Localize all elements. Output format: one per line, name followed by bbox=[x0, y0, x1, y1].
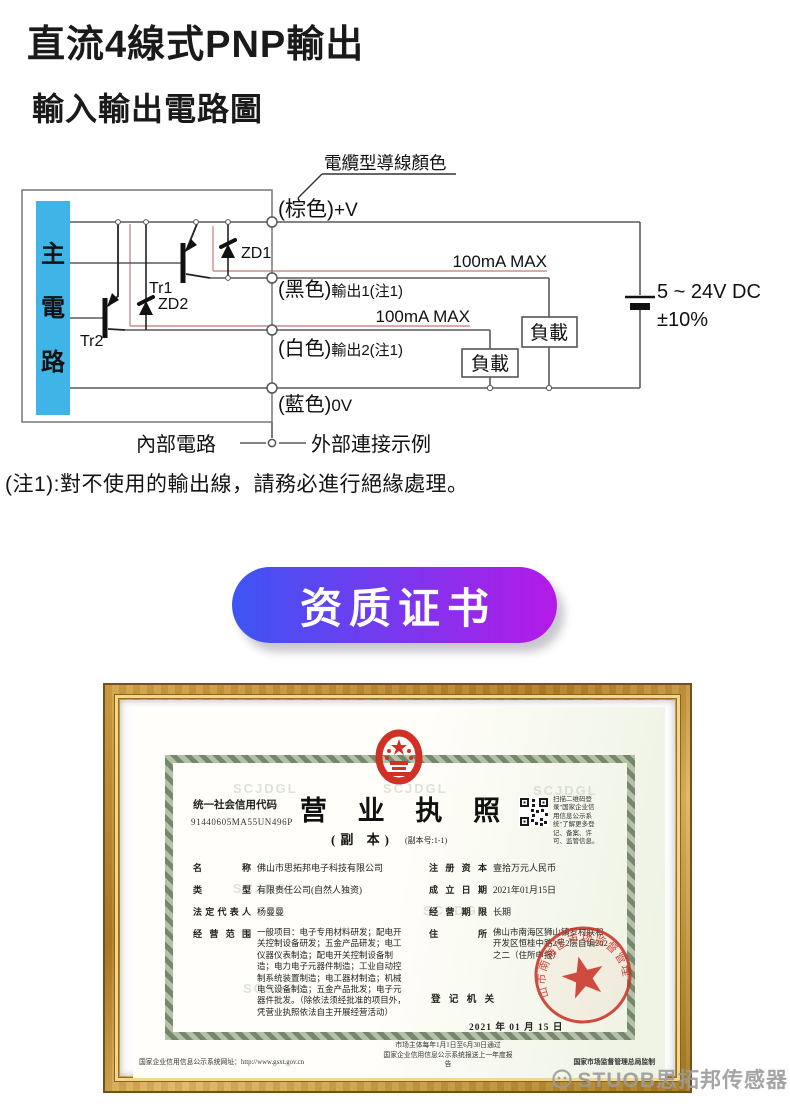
pointer-leader-line bbox=[298, 174, 456, 198]
field-registered-capital: 注册资本壹拾万元人民币 bbox=[429, 861, 611, 874]
wire-white-label: (白色)輸出2(注1) bbox=[278, 337, 403, 360]
svg-text:路: 路 bbox=[41, 348, 66, 376]
current-max-1: 100mA MAX bbox=[453, 252, 548, 271]
svg-text:電: 電 bbox=[41, 295, 65, 322]
qr-code bbox=[519, 797, 549, 827]
license-photo: SCJDGL SCJDGL SCJDGL SCJDGL SCJDGL SCJDG… bbox=[103, 683, 692, 1093]
load1-label: 負載 bbox=[530, 322, 568, 344]
zd2-label: ZD2 bbox=[158, 296, 188, 313]
field-name: 名称佛山市思拓邦电子科技有限公司 bbox=[193, 861, 409, 874]
section-title: 輸入輸出電路圖 bbox=[32, 84, 263, 130]
internal-circuit-label: 內部電路 bbox=[136, 433, 216, 456]
tr1-label: Tr1 bbox=[149, 280, 173, 297]
brand-watermark-text: STUOB思拓邦传感器 bbox=[578, 1064, 789, 1094]
footer-website: 国家企业信用信息公示系统网址：http://www.gsxt.gov.cn bbox=[139, 1056, 304, 1066]
circuit-diagram: 電纜型導線顏色 主 電 bbox=[0, 140, 790, 462]
license-content: SCJDGL SCJDGL SCJDGL SCJDGL SCJDGL SCJDG… bbox=[173, 763, 627, 1032]
field-legal-rep: 法定代表人杨曼曼 bbox=[193, 905, 409, 918]
supply-tolerance-label: ±10% bbox=[657, 309, 708, 331]
brand-watermark: STUOB思拓邦传感器 bbox=[551, 1064, 789, 1094]
transistor-tr2 bbox=[105, 222, 125, 338]
page: 直流4線式PNP輸出 輸入輸出電路圖 電纜型導線顏色 bbox=[0, 0, 790, 1111]
zd1-label: ZD1 bbox=[241, 245, 271, 262]
footnote: (注1):對不使用的輸出線，請務必進行絕緣處理。 bbox=[5, 468, 469, 498]
page-title: 直流4線式PNP輸出 bbox=[27, 13, 364, 68]
field-establish-date: 成立日期2021年01月15日 bbox=[429, 883, 611, 896]
svg-text:主: 主 bbox=[41, 241, 65, 268]
license-subtitle: (副 本) bbox=[331, 829, 394, 848]
wire-blue-label: (藍色)0V bbox=[278, 393, 353, 416]
certificate-button[interactable]: 资质证书 bbox=[232, 567, 557, 643]
registrar-label: 登 记 机 关 bbox=[431, 991, 497, 1005]
license-paper: SCJDGL SCJDGL SCJDGL SCJDGL SCJDGL SCJDG… bbox=[133, 707, 665, 1078]
load2-label: 負載 bbox=[471, 353, 509, 375]
field-type: 类型有限责任公司(自然人独资) bbox=[193, 883, 409, 896]
zener-diode-zd2 bbox=[139, 222, 153, 330]
load-boxes: 負載 負載 bbox=[462, 317, 577, 377]
qr-caption: 扫描二维码登录"国家企业信用信息公示系统"了解更多登记、备案、许可、监管信息。 bbox=[553, 796, 601, 847]
certificate-button-label: 资质证书 bbox=[293, 575, 496, 636]
cable-color-pointer-label: 電纜型導線顏色 bbox=[324, 153, 447, 173]
field-business-scope: 经营范围一般项目：电子专用材料研发；配电开关控制设备研发；五金产品研发；电工仪器… bbox=[193, 927, 409, 1018]
field-business-term: 经营期限长期 bbox=[429, 905, 611, 918]
wire-brown-label: (棕色)+V bbox=[278, 198, 358, 221]
transistor-tr1 bbox=[183, 224, 210, 283]
main-circuit-label: 主 電 路 bbox=[41, 241, 66, 376]
brand-logo-icon bbox=[551, 1068, 573, 1090]
wire-black-label: (黑色)輸出1(注1) bbox=[278, 278, 403, 301]
license-copy-number: (副本号:1-1) bbox=[405, 835, 447, 846]
footer-annual-report: 市场主体每年1月1日至6月30日通过 国家企业信用信息公示系统报送上一年度报告 bbox=[383, 1041, 513, 1070]
zener-diode-zd1 bbox=[221, 222, 235, 278]
battery-symbol bbox=[625, 297, 655, 310]
supply-voltage-label: 5 ~ 24V DC bbox=[657, 281, 761, 303]
tr2-label: Tr2 bbox=[80, 333, 104, 350]
external-connection-label: 外部連接示例 bbox=[311, 433, 431, 456]
current-max-2: 100mA MAX bbox=[376, 307, 471, 326]
